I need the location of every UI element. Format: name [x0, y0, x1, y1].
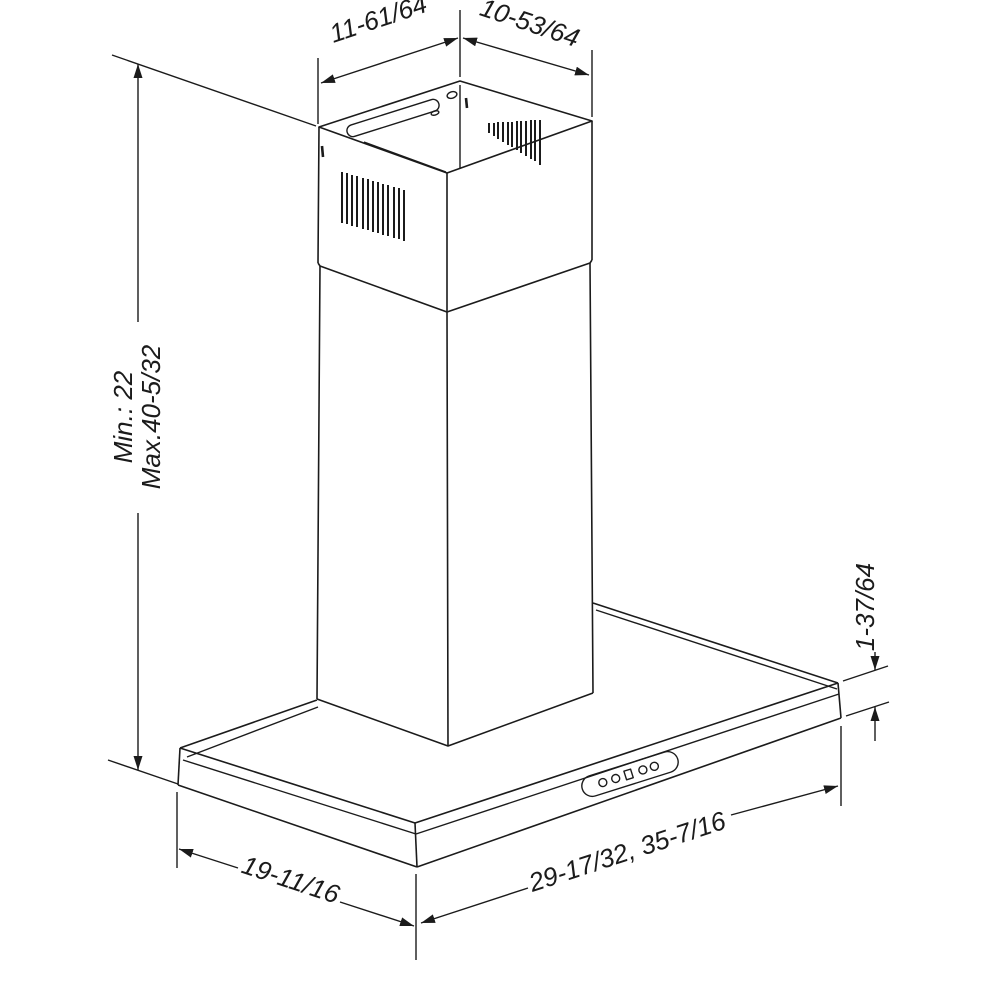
left-face-tab [322, 146, 323, 157]
base-front-left-top-edge [180, 748, 415, 823]
dimension-line-right-part [731, 786, 838, 815]
base-left-corner-edge [178, 748, 180, 785]
mounting-hole [446, 90, 457, 99]
base-top-back-left-chamfer [187, 707, 318, 757]
base-front-left-bottom-edge [178, 785, 417, 867]
extension-line-top [112, 55, 316, 126]
control-button-5-circle[interactable] [649, 761, 659, 771]
control-button-4-circle[interactable] [638, 765, 648, 775]
chimney-upper-edges [318, 121, 592, 311]
dimension-line-left-part [179, 849, 238, 868]
base-front-left-chamfer [183, 760, 416, 834]
range-hood-diagram: 11-61/64 10-53/64 Min.: 22 Max.40-5/32 1… [0, 0, 1000, 1000]
extension-line-bottom [108, 760, 178, 784]
drawing-canvas: 11-61/64 10-53/64 Min.: 22 Max.40-5/32 1… [0, 0, 1000, 1000]
base-front-corner-edge [415, 823, 417, 867]
control-button-1-circle[interactable] [598, 778, 608, 788]
base-top-back-left-edge [180, 700, 317, 748]
mounting-slot [345, 98, 440, 138]
base-top-back-right-edge [593, 603, 838, 683]
dim-base-lip-label: 1-37/64 [850, 563, 880, 651]
dim-top-width-label: 10-53/64 [476, 0, 583, 53]
chimney-top-interior [345, 85, 540, 172]
extension-line-top [843, 666, 888, 681]
dim-height-min-label: Min.: 22 [108, 370, 138, 463]
dim-overall-height: Min.: 22 Max.40-5/32 [108, 55, 316, 784]
chimney-lower-edges [317, 263, 593, 746]
control-button-3-square[interactable] [624, 769, 633, 780]
chimney-base-junction [317, 693, 593, 746]
dim-height-max-label: Max.40-5/32 [136, 344, 166, 489]
chimney-lower-section [317, 263, 593, 746]
base-right-corner-edge [838, 683, 841, 718]
dimension-line-right-part [340, 902, 414, 926]
hood-base [178, 603, 841, 867]
base-top-back-right-chamfer [596, 610, 837, 689]
dimension-line-left-part [421, 888, 528, 923]
extension-line-bottom [846, 702, 889, 716]
vent-grille-left [322, 146, 404, 241]
chimney-top-rim [319, 81, 592, 173]
base-front-right-top-edge [415, 683, 838, 823]
chimney-seam [318, 260, 592, 312]
vent-grille-slats [342, 172, 404, 241]
interior-wall-edge [364, 142, 446, 172]
interior-tab [466, 98, 467, 108]
chimney-upper-section [318, 81, 592, 312]
dim-top-width: 10-53/64 [463, 0, 592, 117]
control-button-2-circle[interactable] [611, 773, 621, 783]
dim-top-depth-label: 11-61/64 [326, 0, 431, 49]
mounting-hole-small [431, 110, 440, 116]
dim-base-lip: 1-37/64 [843, 563, 889, 741]
dim-base-depth-label: 19-11/16 [238, 849, 344, 909]
dim-base-width: 29-17/32, 35-7/16 [421, 726, 841, 923]
dim-base-depth: 19-11/16 [177, 792, 416, 960]
